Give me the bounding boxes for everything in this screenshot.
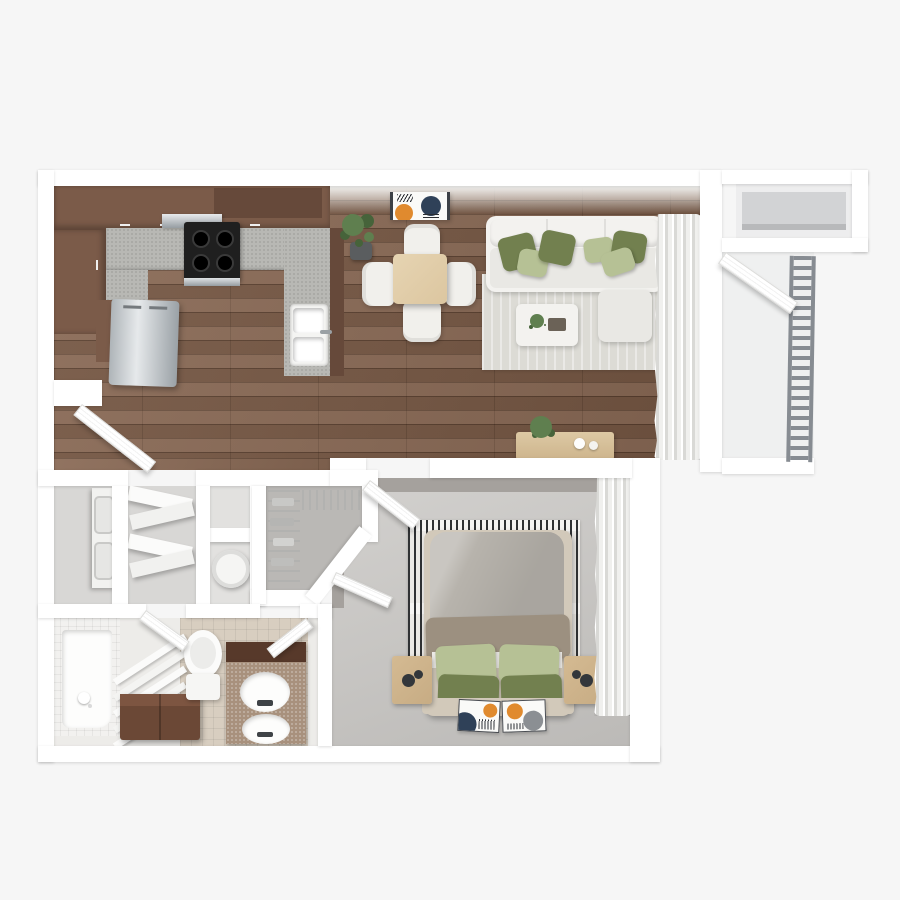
console-plant: [530, 416, 552, 438]
wall-block-top-a: [38, 470, 128, 486]
folded-clothes: [272, 498, 294, 506]
card-navy-shape: [457, 712, 477, 733]
bed-mattress-sheet: [430, 532, 564, 622]
wall-cubby-closet: [252, 486, 266, 604]
sink-basin: [293, 308, 324, 333]
wall-entry-jog: [54, 380, 102, 406]
card-orange-dot: [483, 703, 498, 718]
bench-split: [159, 694, 161, 740]
burner: [216, 254, 234, 272]
wood-floor-entry: [54, 458, 330, 470]
cabinet-handle: [96, 260, 98, 270]
dining-chair-bottom: [403, 302, 441, 342]
coffee-table-tray: [548, 318, 566, 331]
nightstand-decor: [572, 670, 581, 679]
console-bowl: [589, 441, 598, 450]
living-curtains: [654, 214, 702, 460]
wall-left: [38, 170, 54, 762]
dining-chair-right: [446, 262, 476, 306]
plant-foliage: [342, 214, 364, 236]
art-orange-blob: [395, 204, 413, 220]
folded-clothes: [270, 518, 294, 526]
art-lines: [397, 194, 413, 202]
folded-clothes: [271, 558, 294, 566]
dining-plant: [332, 206, 378, 262]
art-lines: [423, 212, 439, 218]
dining-chair-left: [362, 262, 394, 306]
wall-bottom: [38, 746, 660, 762]
kitchen-upper-cabinets-dark: [214, 188, 322, 218]
cabinet-handle: [120, 224, 130, 226]
faucet-icon: [320, 330, 332, 334]
nightstand-decor: [414, 670, 423, 679]
vanity-sink: [242, 714, 290, 744]
balcony-railing: [786, 256, 816, 462]
console-bowl: [574, 438, 585, 449]
dining-chair-top: [404, 224, 440, 258]
burner: [192, 254, 210, 272]
bedroom-curtains: [594, 476, 632, 716]
burner: [192, 230, 210, 248]
sink-basin: [293, 337, 324, 362]
stove: [184, 222, 240, 282]
washer-door: [94, 496, 114, 534]
bed: [424, 530, 572, 716]
sofa-chaise-ottoman: [598, 290, 652, 342]
tub-shower: [52, 618, 120, 736]
toilet-tank: [186, 674, 220, 700]
wall-bath-top-b: [186, 604, 260, 618]
wall-bath-top-a: [38, 604, 146, 618]
burner: [216, 230, 234, 248]
balcony-storage-shelf: [742, 192, 846, 230]
card-stripes: [507, 723, 523, 730]
fridge-handle: [123, 305, 141, 309]
cabinet-handle: [250, 224, 260, 226]
vanity-counter: [226, 662, 306, 744]
card-stripes: [478, 719, 495, 730]
coffee-table: [516, 304, 578, 346]
hand-shower-icon: [78, 692, 90, 704]
console-table: [516, 432, 614, 460]
closet-hanging-rail: [302, 490, 360, 510]
plant-pot: [350, 242, 372, 260]
water-heater: [212, 550, 250, 588]
sink-faucet-icon: [257, 700, 273, 706]
kitchen-sink: [290, 304, 328, 366]
wall-living-balcony: [700, 170, 722, 472]
nightstand-decor: [580, 674, 593, 687]
wall-storage-top: [722, 170, 868, 184]
tub-basin: [62, 630, 112, 728]
floor-art-card: [457, 699, 501, 733]
floorplan-stage: [0, 0, 900, 900]
vanity-backsplash: [226, 642, 306, 662]
dining-table: [393, 254, 447, 304]
dryer-door: [94, 542, 114, 580]
stove-front-trim: [184, 278, 240, 286]
wall-bedroom-right: [630, 458, 660, 762]
nightstand-decor: [402, 674, 415, 687]
wall-living-bedroom-b: [430, 458, 632, 478]
card-orange-dot: [507, 703, 524, 720]
floor-art-card: [501, 699, 546, 733]
wall-utility-cubby: [196, 486, 210, 604]
coffee-table-plant: [530, 314, 544, 328]
nightstand-left: [392, 656, 432, 704]
sink-faucet-icon: [257, 732, 273, 737]
closet-shelf-divider: [210, 528, 252, 542]
wall-block-top-b: [196, 470, 330, 486]
wall-face-band: [330, 186, 700, 214]
toilet-seat-ring: [190, 637, 216, 669]
sofa-pillow-olive: [537, 229, 577, 267]
folded-clothes: [273, 538, 294, 546]
dining-wall-art: [390, 192, 450, 220]
refrigerator: [109, 299, 180, 387]
wall-vestibule: [318, 604, 332, 746]
wall-top: [38, 170, 722, 186]
card-gray-shape: [523, 710, 544, 731]
wall-storage-bottom: [722, 238, 868, 252]
fridge-handle: [149, 306, 167, 310]
vanity-sink: [240, 672, 290, 712]
closet-wire-shelves: [268, 490, 300, 586]
wall-laundry-utility: [112, 486, 128, 604]
